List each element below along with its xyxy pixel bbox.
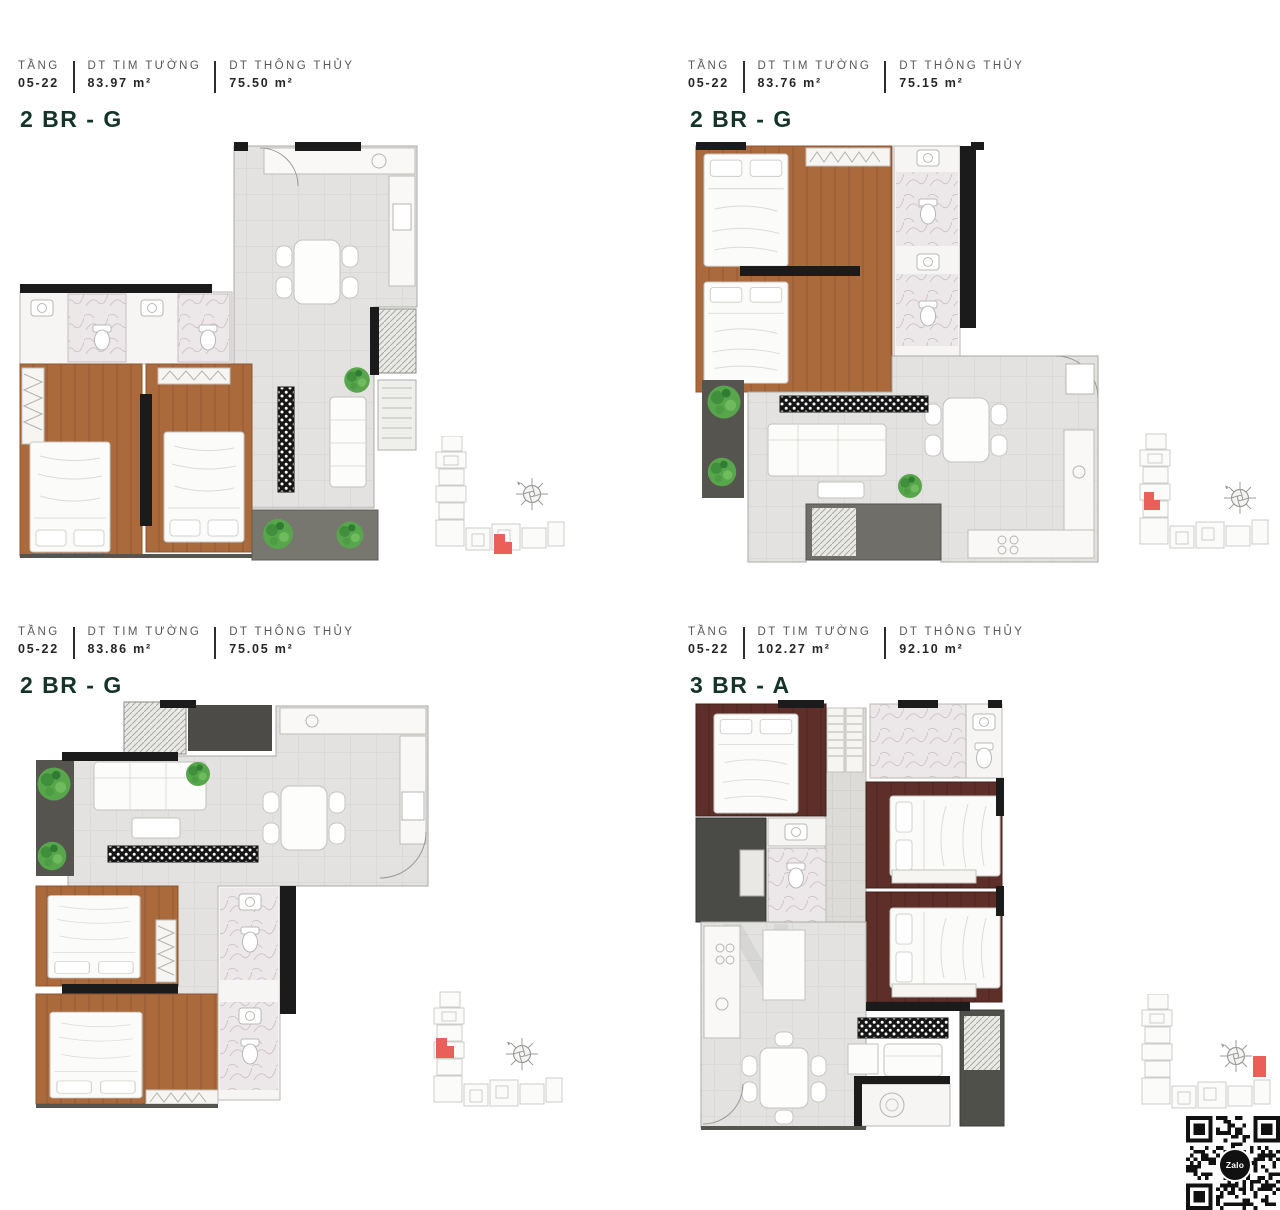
bed — [704, 154, 788, 266]
gross-area-value: 83.76 m² — [758, 76, 872, 90]
zalo-logo-label: Zalo — [1226, 1160, 1244, 1170]
floor-value: 05-22 — [18, 642, 60, 656]
wall — [854, 1084, 862, 1126]
net-area-value: 75.50 m² — [229, 76, 354, 90]
plant — [708, 458, 737, 487]
sofa — [330, 397, 366, 487]
wall — [971, 142, 984, 150]
tv-cabinet — [858, 1018, 948, 1038]
kitchen-counter — [400, 736, 426, 844]
floor-plan-2br-g-3 — [12, 700, 432, 1145]
plant — [38, 842, 67, 871]
fridge — [402, 792, 424, 820]
header-divider — [884, 61, 886, 93]
keyplan — [1132, 430, 1272, 566]
floor-plan-3br-a: N — [688, 700, 1006, 1132]
wall — [996, 778, 1004, 816]
net-area-value: 75.05 m² — [229, 642, 354, 656]
unit-type-label: 2 BR - G — [690, 106, 793, 133]
kitchen-counter — [704, 926, 740, 1038]
compass-icon — [1224, 482, 1256, 514]
header-divider — [73, 61, 75, 93]
sink — [141, 300, 163, 316]
keyplan — [1134, 994, 1274, 1118]
net-area-label: DT THÔNG THỦY — [899, 626, 1024, 638]
toilet — [787, 863, 805, 888]
sink — [239, 1008, 261, 1024]
floor-value: 05-22 — [18, 76, 60, 90]
wardrobe — [158, 368, 230, 384]
fridge — [393, 204, 411, 230]
coffee-table — [818, 482, 864, 498]
plant — [898, 474, 922, 498]
net-area-block: DT THÔNG THỦY 75.50 m² — [229, 60, 354, 93]
floor-plan-2br-g-1 — [12, 142, 420, 566]
plan-header: TẦNG 05-22 DT TIM TƯỜNG 83.76 m² DT THÔN… — [688, 60, 1024, 93]
gross-area-value: 83.97 m² — [88, 76, 202, 90]
floor-block: TẦNG 05-22 — [18, 60, 60, 93]
net-area-label: DT THÔNG THỦY — [899, 60, 1024, 72]
wall — [696, 142, 746, 150]
wall — [160, 700, 196, 708]
gross-area-block: DT TIM TƯỜNG 102.27 m² — [758, 626, 872, 659]
bed — [704, 282, 788, 383]
zalo-logo: Zalo — [1218, 1148, 1252, 1182]
wall — [898, 700, 938, 708]
toilet — [975, 743, 993, 768]
floor-block: TẦNG 05-22 — [18, 626, 60, 659]
plant — [344, 367, 370, 393]
bed — [714, 714, 798, 813]
bed — [50, 1012, 142, 1098]
kitchen-counter — [1064, 430, 1094, 534]
compass-icon — [516, 478, 548, 510]
coffee-table — [132, 818, 180, 838]
gross-area-value: 102.27 m² — [758, 642, 872, 656]
floor-label: TẦNG — [18, 60, 60, 72]
net-area-value: 75.15 m² — [899, 76, 1024, 90]
plan-header: TẦNG 05-22 DT TIM TƯỜNG 83.97 m² DT THÔN… — [18, 60, 354, 93]
wall — [778, 700, 824, 708]
bed — [30, 442, 110, 552]
plant — [38, 768, 71, 801]
utility-room — [860, 1084, 950, 1126]
floor-plan-2br-g-2 — [688, 142, 1108, 568]
floor-label: TẦNG — [688, 626, 730, 638]
wall — [996, 886, 1004, 916]
wall — [740, 266, 860, 276]
wall — [370, 307, 379, 375]
wall — [854, 1076, 950, 1084]
wall — [295, 142, 361, 151]
keyplan-building — [436, 436, 564, 550]
plan-header: TẦNG 05-22 DT TIM TƯỜNG 83.86 m² DT THÔN… — [18, 626, 354, 659]
sink — [917, 150, 939, 166]
appliance — [740, 850, 764, 896]
ac-ledge — [378, 380, 416, 450]
wall — [36, 1104, 218, 1108]
toilet — [241, 1039, 259, 1064]
wall — [234, 142, 248, 151]
net-area-label: DT THÔNG THỦY — [229, 60, 354, 72]
floor-label: TẦNG — [18, 626, 60, 638]
header-divider — [214, 61, 216, 93]
wall — [960, 146, 976, 328]
compass-icon — [1220, 1040, 1252, 1072]
net-area-block: DT THÔNG THỦY 92.10 m² — [899, 626, 1024, 659]
gross-area-label: DT TIM TƯỜNG — [758, 626, 872, 638]
toilet — [241, 927, 259, 952]
plant — [708, 386, 741, 419]
plant — [337, 522, 364, 549]
bed-bench — [892, 870, 976, 883]
header-divider — [743, 627, 745, 659]
bed — [890, 908, 1000, 988]
sink — [973, 714, 995, 730]
net-area-value: 92.10 m² — [899, 642, 1024, 656]
wall — [62, 984, 178, 994]
wall — [280, 886, 296, 1014]
keyplan-building — [1142, 994, 1270, 1108]
bed — [48, 896, 140, 979]
highlighted-unit — [1253, 1056, 1266, 1077]
net-area-block: DT THÔNG THỦY 75.05 m² — [229, 626, 354, 659]
unit-type-label: 3 BR - A — [690, 672, 791, 699]
compass-icon — [506, 1038, 538, 1070]
net-area-block: DT THÔNG THỦY 75.15 m² — [899, 60, 1024, 93]
floor-block: TẦNG 05-22 — [688, 60, 730, 93]
net-area-label: DT THÔNG THỦY — [229, 626, 354, 638]
tv-cabinet — [278, 387, 294, 492]
storeroom — [378, 309, 416, 373]
floor-value: 05-22 — [688, 642, 730, 656]
kitchen-counter — [968, 530, 1094, 558]
wall — [20, 284, 212, 293]
ac-ledge — [124, 702, 186, 754]
bed-bench — [892, 984, 976, 997]
qr-code: Zalo — [1186, 1116, 1280, 1210]
toilet — [919, 301, 937, 326]
header-divider — [214, 627, 216, 659]
kitchen-island — [763, 930, 805, 1000]
side-table — [848, 1044, 878, 1074]
sink — [31, 300, 53, 316]
toilet — [919, 199, 937, 224]
bed — [164, 432, 244, 542]
keyplan-building — [1140, 434, 1268, 548]
header-divider — [743, 61, 745, 93]
wall — [988, 700, 1002, 708]
balcony — [188, 705, 272, 751]
wall — [62, 752, 178, 761]
gross-area-block: DT TIM TƯỜNG 83.97 m² — [88, 60, 202, 93]
bed — [890, 796, 1000, 876]
keyplan — [428, 436, 568, 560]
gross-area-label: DT TIM TƯỜNG — [88, 60, 202, 72]
toilet — [199, 325, 217, 350]
floorplan-sheet: TẦNG 05-22 DT TIM TƯỜNG 83.97 m² DT THÔN… — [0, 0, 1280, 1210]
wall — [701, 1126, 866, 1130]
floor-label: TẦNG — [688, 60, 730, 72]
sink — [239, 894, 261, 910]
wardrobe — [22, 368, 44, 444]
tv-cabinet — [108, 846, 258, 862]
plant — [263, 519, 293, 549]
gross-area-block: DT TIM TƯỜNG 83.76 m² — [758, 60, 872, 93]
kitchen-counter — [280, 708, 426, 734]
keyplan — [426, 988, 566, 1124]
header-divider — [884, 627, 886, 659]
tv-cabinet — [780, 396, 928, 412]
gross-area-value: 83.86 m² — [88, 642, 202, 656]
floor-value: 05-22 — [688, 76, 730, 90]
unit-type-label: 2 BR - G — [20, 106, 123, 133]
wall — [140, 394, 152, 526]
header-divider — [73, 627, 75, 659]
sofa — [884, 1044, 942, 1076]
gross-area-label: DT TIM TƯỜNG — [88, 626, 202, 638]
kitchen-counter — [389, 176, 415, 286]
floor-block: TẦNG 05-22 — [688, 626, 730, 659]
fridge — [1066, 364, 1094, 394]
kitchen-counter — [264, 148, 415, 174]
plan-header: TẦNG 05-22 DT TIM TƯỜNG 102.27 m² DT THÔ… — [688, 626, 1024, 659]
sofa — [768, 424, 886, 476]
gross-area-block: DT TIM TƯỜNG 83.86 m² — [88, 626, 202, 659]
sink — [917, 254, 939, 270]
gross-area-label: DT TIM TƯỜNG — [758, 60, 872, 72]
wall — [20, 554, 252, 558]
unit-type-label: 2 BR - G — [20, 672, 123, 699]
plant — [186, 762, 210, 786]
wall — [866, 1002, 970, 1011]
toilet — [93, 325, 111, 350]
bathroom — [870, 704, 966, 778]
sink — [785, 824, 807, 840]
